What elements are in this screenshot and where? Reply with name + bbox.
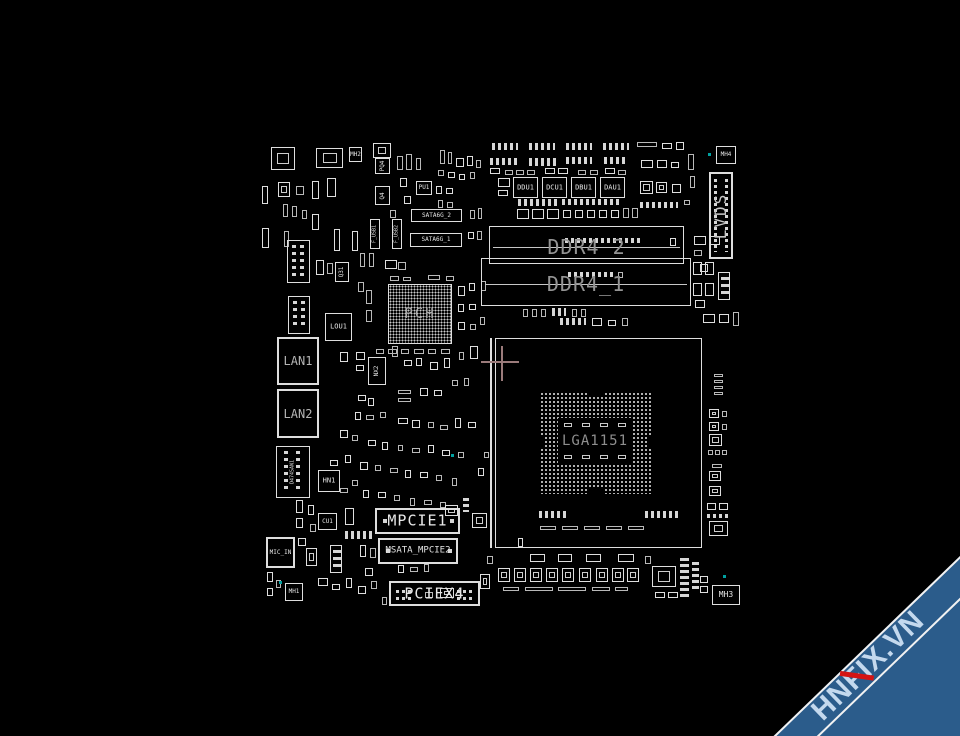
boardview-canvas[interactable]: MH2PQ4Q4PU1SATA6G_2SATA6G_1F_USB1F_USB2Q…: [0, 0, 960, 736]
component[interactable]: [714, 386, 723, 389]
component[interactable]: [368, 398, 374, 406]
component[interactable]: [327, 263, 333, 274]
component[interactable]: [302, 210, 307, 219]
component[interactable]: [330, 460, 338, 466]
component[interactable]: [262, 186, 268, 204]
pch-chip[interactable]: PCH: [388, 284, 452, 344]
component[interactable]: [733, 312, 739, 326]
pad-array[interactable]: [490, 158, 518, 165]
f-usb2-header[interactable]: F_USB2: [392, 219, 402, 249]
component[interactable]: [487, 556, 493, 564]
mounting-hole-mh3[interactable]: MH3: [712, 585, 740, 605]
component[interactable]: [476, 160, 481, 168]
component[interactable]: [558, 587, 586, 591]
component[interactable]: [327, 178, 336, 197]
component[interactable]: [398, 445, 403, 451]
component[interactable]: [312, 214, 319, 230]
cu1-chip[interactable]: CU1: [318, 513, 337, 530]
lou1-chip[interactable]: LOU1: [325, 313, 352, 341]
component[interactable]: [530, 554, 545, 562]
component[interactable]: [442, 450, 450, 456]
component[interactable]: [709, 471, 721, 481]
component[interactable]: [468, 422, 476, 428]
component[interactable]: [469, 283, 475, 291]
component[interactable]: [424, 564, 429, 572]
pad-array[interactable]: [604, 157, 628, 164]
component[interactable]: [694, 236, 706, 245]
component[interactable]: [656, 182, 667, 193]
component[interactable]: [424, 500, 432, 505]
component[interactable]: [310, 524, 316, 532]
component[interactable]: [480, 574, 490, 589]
component[interactable]: [618, 170, 626, 175]
test-point: [708, 153, 711, 156]
component[interactable]: [615, 587, 628, 591]
mpcie1-slot[interactable]: MPCIE1: [375, 508, 460, 534]
mic-in-connector[interactable]: MIC_IN: [266, 537, 295, 568]
component[interactable]: [412, 420, 420, 428]
component[interactable]: [719, 503, 728, 510]
component[interactable]: [592, 587, 610, 591]
component[interactable]: [470, 172, 475, 179]
component[interactable]: [672, 184, 681, 193]
component[interactable]: [605, 168, 615, 174]
component[interactable]: [298, 538, 306, 546]
component[interactable]: [345, 455, 351, 463]
sata6g-2-connector[interactable]: SATA6G_2: [411, 209, 462, 222]
pciex4-slot[interactable]: PCIEX4: [389, 581, 480, 606]
component[interactable]: [676, 142, 684, 150]
mounting-hole-mh2[interactable]: MH2: [349, 147, 362, 162]
crosshair-cursor: [501, 346, 503, 381]
component[interactable]: [688, 154, 694, 170]
component[interactable]: [366, 310, 372, 322]
component[interactable]: [558, 554, 572, 562]
component[interactable]: [428, 445, 434, 453]
q4[interactable]: Q4: [375, 186, 390, 205]
component[interactable]: [452, 380, 458, 386]
component[interactable]: [558, 168, 568, 174]
component[interactable]: [467, 156, 473, 166]
component[interactable]: [709, 409, 719, 418]
component[interactable]: [514, 568, 526, 582]
component[interactable]: [718, 272, 730, 300]
dcu1-chip[interactable]: DCU1: [542, 177, 567, 198]
component[interactable]: [375, 465, 381, 471]
pad-array[interactable]: [640, 202, 678, 208]
component[interactable]: [612, 568, 624, 582]
component[interactable]: [448, 152, 452, 164]
component[interactable]: [346, 578, 352, 588]
component[interactable]: [296, 518, 303, 528]
component[interactable]: [700, 586, 708, 593]
component[interactable]: [530, 568, 542, 582]
component[interactable]: [296, 500, 303, 513]
component[interactable]: [436, 475, 442, 481]
component[interactable]: [392, 346, 398, 357]
sata6g-1-connector[interactable]: SATA6G_1: [410, 233, 462, 247]
pad-array[interactable]: [345, 531, 373, 539]
component[interactable]: [484, 452, 489, 458]
pad-array[interactable]: [529, 158, 557, 166]
component[interactable]: [404, 360, 412, 366]
component[interactable]: [464, 378, 469, 386]
component[interactable]: [572, 309, 577, 317]
component[interactable]: [318, 578, 328, 586]
mounting-hole-mh4[interactable]: MH4: [716, 146, 736, 164]
component[interactable]: [690, 176, 695, 188]
component[interactable]: [394, 495, 400, 501]
component[interactable]: [712, 464, 722, 468]
component[interactable]: [410, 567, 418, 572]
component[interactable]: [330, 545, 342, 573]
component[interactable]: [714, 380, 723, 383]
component[interactable]: [340, 352, 348, 362]
component[interactable]: [477, 231, 482, 240]
component[interactable]: [360, 253, 365, 267]
component[interactable]: [579, 568, 591, 582]
component[interactable]: [586, 554, 601, 562]
component[interactable]: [358, 282, 364, 292]
component[interactable]: [709, 434, 722, 446]
pad-array[interactable]: [603, 143, 629, 150]
lga1151-socket[interactable]: LGA1151: [540, 392, 652, 494]
component[interactable]: [332, 584, 340, 590]
component[interactable]: [436, 186, 442, 194]
component[interactable]: [414, 349, 424, 354]
component[interactable]: [700, 576, 708, 583]
component[interactable]: [490, 168, 500, 174]
component[interactable]: [406, 154, 412, 170]
dbu1-chip[interactable]: DBU1: [571, 177, 596, 198]
component[interactable]: [714, 374, 723, 377]
component[interactable]: [356, 352, 365, 360]
component[interactable]: [700, 264, 708, 272]
component[interactable]: [541, 309, 546, 317]
component[interactable]: [608, 320, 616, 326]
component[interactable]: [563, 210, 571, 218]
component[interactable]: [456, 158, 464, 167]
component[interactable]: [267, 572, 273, 582]
component[interactable]: [403, 277, 411, 281]
component[interactable]: [380, 412, 386, 418]
component[interactable]: [434, 390, 442, 396]
component[interactable]: [446, 276, 454, 281]
component[interactable]: [722, 450, 727, 455]
component[interactable]: [468, 232, 474, 239]
component[interactable]: [428, 275, 440, 280]
component[interactable]: [376, 349, 384, 354]
component[interactable]: [662, 143, 672, 149]
component[interactable]: [366, 290, 372, 304]
f-usb1-header[interactable]: F_USB1: [370, 219, 380, 249]
component[interactable]: [398, 390, 411, 394]
component[interactable]: [316, 260, 324, 275]
component[interactable]: [404, 196, 411, 204]
component[interactable]: [472, 513, 487, 528]
pq4[interactable]: PQ4: [375, 158, 390, 174]
pad-array[interactable]: [680, 558, 689, 600]
component[interactable]: [292, 206, 297, 217]
component[interactable]: [722, 411, 727, 417]
pad-array[interactable]: [560, 318, 586, 325]
q31[interactable]: Q31: [335, 262, 349, 282]
component[interactable]: [382, 442, 388, 450]
pad-array[interactable]: [562, 199, 622, 205]
component[interactable]: [627, 568, 639, 582]
component[interactable]: [390, 276, 399, 281]
component[interactable]: [470, 346, 478, 359]
component[interactable]: [655, 592, 665, 598]
component[interactable]: [545, 168, 555, 174]
component[interactable]: [271, 147, 295, 170]
component[interactable]: [420, 472, 428, 478]
component[interactable]: [498, 568, 510, 582]
component[interactable]: [469, 304, 476, 310]
component[interactable]: [709, 521, 728, 536]
component[interactable]: [722, 424, 727, 430]
component[interactable]: [334, 229, 340, 251]
component[interactable]: [478, 468, 484, 476]
component[interactable]: [262, 228, 269, 248]
pad-array[interactable]: [566, 143, 592, 150]
component[interactable]: [371, 581, 377, 589]
component[interactable]: [705, 283, 714, 296]
component[interactable]: [719, 314, 729, 323]
component[interactable]: [516, 170, 524, 175]
component[interactable]: [401, 349, 409, 354]
component[interactable]: [416, 158, 421, 170]
component[interactable]: [446, 188, 453, 194]
component[interactable]: [352, 480, 358, 486]
component[interactable]: [587, 210, 595, 218]
pad-array[interactable]: [529, 143, 555, 150]
component[interactable]: [592, 318, 602, 326]
component[interactable]: [360, 545, 366, 557]
component[interactable]: [316, 148, 343, 168]
nx2[interactable]: NX2: [368, 357, 386, 385]
test-point: [723, 575, 726, 578]
component[interactable]: [470, 210, 475, 219]
component[interactable]: [709, 422, 719, 431]
component[interactable]: [695, 300, 705, 308]
component[interactable]: [709, 486, 721, 496]
pad-array[interactable]: [492, 143, 518, 150]
component[interactable]: [478, 208, 482, 219]
component[interactable]: [405, 470, 411, 478]
component[interactable]: [410, 498, 415, 506]
ddu1-chip[interactable]: DDU1: [513, 177, 538, 198]
component[interactable]: [440, 425, 448, 430]
pad-array[interactable]: [552, 308, 566, 316]
component[interactable]: [398, 398, 411, 402]
component[interactable]: [693, 283, 702, 296]
component[interactable]: [714, 392, 723, 395]
component[interactable]: [358, 395, 366, 401]
msata-mpcie2-slot[interactable]: MSATA_MPCIE2: [378, 538, 458, 564]
component[interactable]: [398, 262, 406, 270]
component[interactable]: [640, 181, 653, 194]
component[interactable]: [458, 322, 465, 330]
component[interactable]: [352, 231, 358, 251]
component[interactable]: [345, 508, 354, 525]
hn1-chip[interactable]: HN1: [318, 470, 340, 492]
lvds-connector[interactable]: LVDS: [709, 172, 733, 259]
component[interactable]: [590, 170, 598, 175]
ddr4-1-dimm-slot[interactable]: DDR4_1: [481, 258, 691, 306]
component[interactable]: [547, 209, 559, 219]
component[interactable]: [622, 318, 628, 326]
board-layer: MH2PQ4Q4PU1SATA6G_2SATA6G_1F_USB1F_USB2Q…: [0, 0, 960, 736]
component[interactable]: [618, 554, 634, 562]
component[interactable]: [420, 388, 428, 396]
component[interactable]: [470, 324, 476, 330]
component[interactable]: [340, 430, 348, 438]
component[interactable]: [480, 317, 485, 325]
component[interactable]: [400, 178, 407, 187]
component[interactable]: [562, 568, 574, 582]
component[interactable]: [373, 143, 391, 158]
component[interactable]: [578, 170, 586, 175]
component[interactable]: [340, 488, 348, 493]
component[interactable]: [368, 440, 376, 446]
component[interactable]: [645, 556, 651, 564]
component[interactable]: [498, 190, 508, 196]
component[interactable]: [703, 314, 715, 323]
component[interactable]: [715, 450, 720, 455]
component[interactable]: [532, 209, 544, 219]
component[interactable]: [306, 548, 317, 566]
pu1[interactable]: PU1: [416, 181, 432, 195]
pad-array[interactable]: [707, 514, 729, 518]
component[interactable]: [523, 309, 528, 317]
component[interactable]: [459, 352, 464, 360]
component[interactable]: [623, 208, 629, 218]
component[interactable]: [575, 210, 583, 218]
component[interactable]: [637, 142, 657, 147]
component[interactable]: [455, 418, 461, 428]
component[interactable]: [527, 170, 535, 175]
component[interactable]: [438, 170, 444, 176]
component[interactable]: [412, 448, 420, 453]
component[interactable]: [459, 174, 465, 180]
component[interactable]: [358, 586, 366, 594]
component[interactable]: [444, 358, 450, 368]
component[interactable]: [378, 492, 386, 498]
crosshair-cursor: [481, 361, 519, 363]
component[interactable]: [296, 186, 304, 195]
component[interactable]: [581, 309, 586, 317]
component[interactable]: [505, 170, 513, 175]
component[interactable]: [708, 450, 713, 455]
pad-array[interactable]: [463, 498, 469, 512]
component[interactable]: [599, 210, 607, 218]
component[interactable]: [363, 490, 369, 498]
component[interactable]: [366, 415, 374, 420]
component[interactable]: [278, 182, 290, 197]
component[interactable]: [447, 202, 453, 208]
component[interactable]: [398, 418, 408, 424]
component[interactable]: [390, 468, 398, 473]
component[interactable]: [440, 150, 445, 164]
component[interactable]: [355, 412, 361, 420]
mounting-hole-mh1[interactable]: MH1: [285, 583, 303, 601]
lan2-connector[interactable]: LAN2: [277, 389, 319, 438]
component[interactable]: [430, 362, 438, 370]
component[interactable]: [428, 422, 434, 428]
component[interactable]: [308, 505, 314, 515]
component[interactable]: [652, 566, 676, 587]
component[interactable]: [632, 208, 638, 218]
component[interactable]: [596, 568, 608, 582]
component[interactable]: [370, 548, 376, 558]
component[interactable]: [498, 178, 510, 187]
component[interactable]: [369, 253, 374, 267]
component[interactable]: [398, 565, 404, 573]
component[interactable]: [382, 597, 387, 605]
pad-array[interactable]: [692, 562, 699, 592]
component[interactable]: [707, 503, 716, 510]
component[interactable]: [452, 478, 457, 486]
component[interactable]: [448, 172, 455, 178]
lan1-connector[interactable]: LAN1: [277, 337, 319, 385]
component[interactable]: [356, 365, 364, 371]
component[interactable]: [525, 587, 553, 591]
component[interactable]: [365, 568, 373, 576]
pad-array[interactable]: [518, 199, 558, 206]
component[interactable]: [287, 240, 310, 283]
component[interactable]: [546, 568, 558, 582]
component[interactable]: [352, 435, 358, 441]
component[interactable]: [312, 181, 319, 199]
component[interactable]: [360, 462, 368, 470]
component[interactable]: [458, 452, 464, 458]
component[interactable]: [385, 260, 397, 269]
component[interactable]: [458, 304, 464, 312]
test-point: [451, 454, 454, 457]
component[interactable]: [490, 338, 492, 548]
component[interactable]: [397, 156, 403, 170]
component[interactable]: [458, 286, 465, 296]
component[interactable]: [657, 160, 667, 168]
component[interactable]: [684, 200, 690, 205]
component[interactable]: [611, 210, 619, 218]
dau1-chip[interactable]: DAU1: [600, 177, 625, 198]
component[interactable]: [668, 592, 678, 598]
component[interactable]: [267, 588, 273, 596]
component[interactable]: [641, 160, 653, 168]
component[interactable]: [390, 210, 396, 218]
component[interactable]: [503, 587, 519, 591]
test-point: [279, 581, 282, 584]
component[interactable]: [671, 162, 679, 168]
component[interactable]: [416, 358, 422, 366]
left-edge-header[interactable]: D4745AN1: [276, 446, 310, 498]
component[interactable]: [532, 309, 537, 317]
component[interactable]: [517, 209, 529, 219]
component[interactable]: [694, 250, 702, 256]
component[interactable]: [441, 349, 450, 354]
component[interactable]: [428, 349, 436, 354]
component[interactable]: [438, 200, 443, 208]
component[interactable]: [288, 296, 310, 334]
component[interactable]: [283, 204, 288, 217]
pad-array[interactable]: [566, 157, 592, 164]
